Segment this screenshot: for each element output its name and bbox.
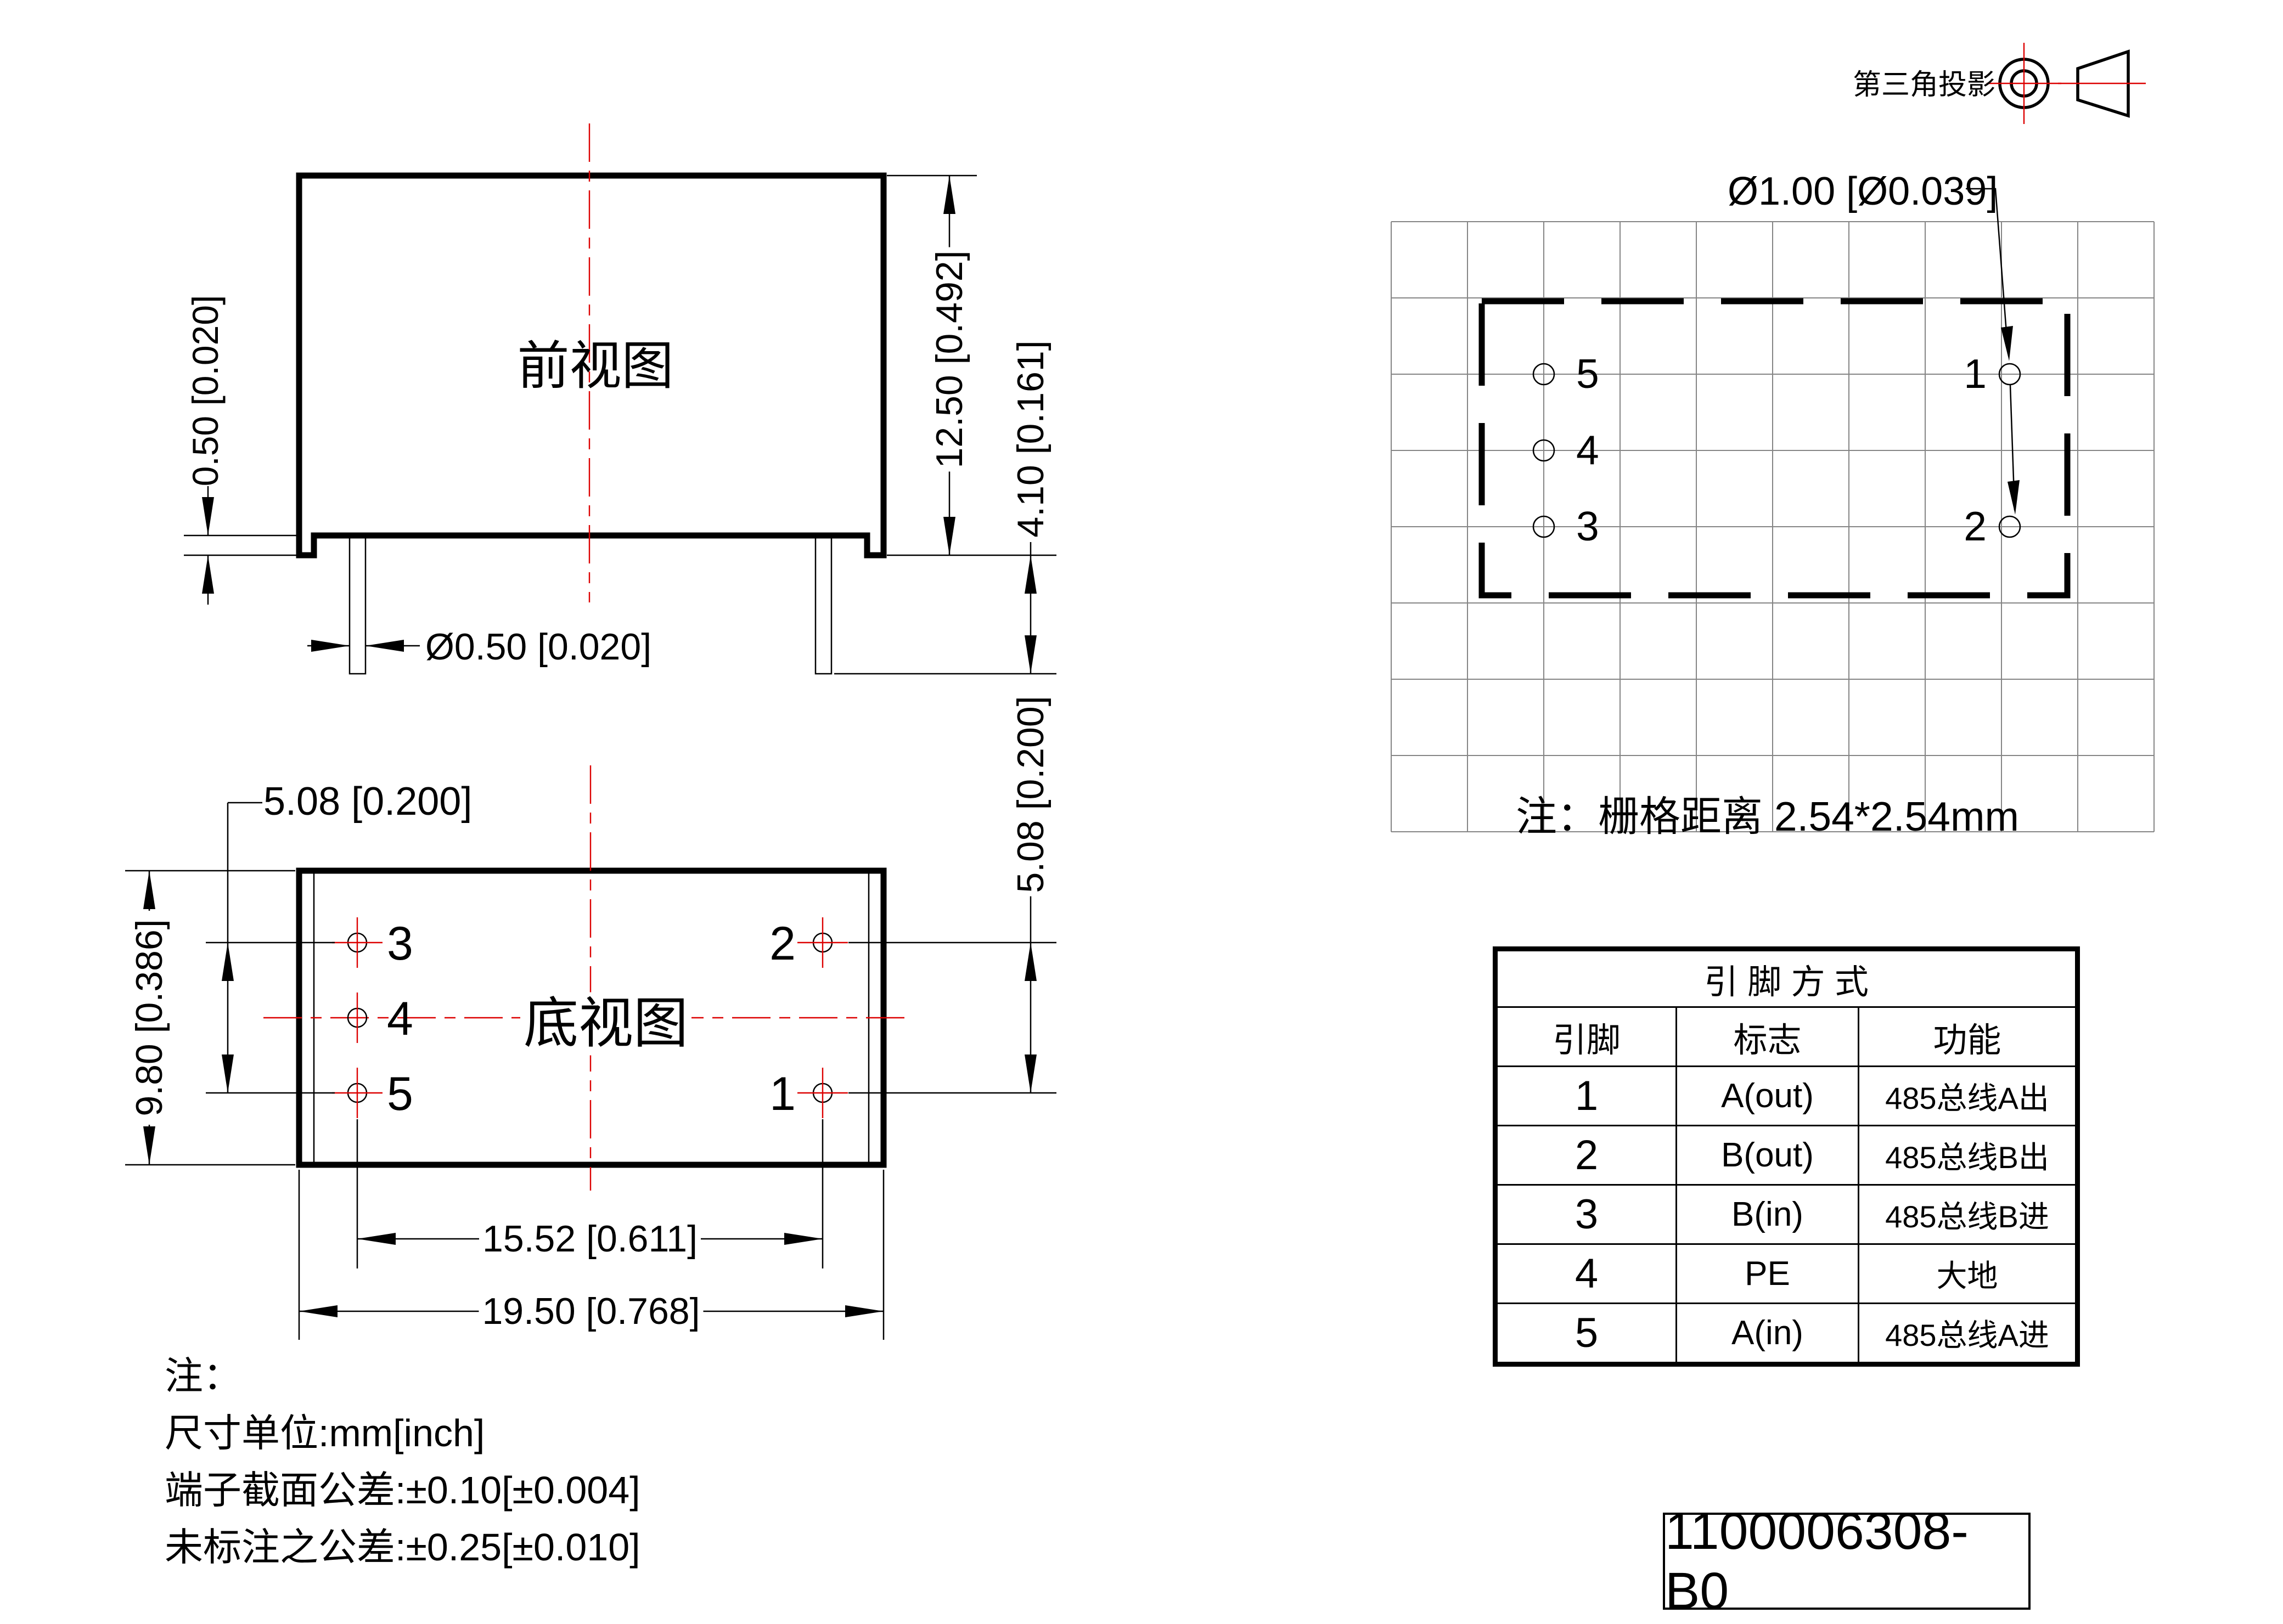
grid-pitch-note: 注：栅格距离 2.54*2.54mm bbox=[1516, 793, 2019, 840]
table-title: 引 脚 方 式 bbox=[1498, 951, 2075, 1006]
bottom-pin1-label: 1 bbox=[746, 1067, 796, 1121]
dim-row-pitch-left-label: 5.08 [0.200] bbox=[263, 779, 472, 825]
third-angle-projection-symbol bbox=[1987, 43, 2146, 124]
cell-pin: 1 bbox=[1498, 1067, 1675, 1125]
hole-diameter-label: Ø1.00 [Ø0.039] bbox=[1728, 169, 1998, 215]
arrowhead bbox=[357, 1233, 396, 1245]
cell-mark: PE bbox=[1675, 1245, 1858, 1302]
arrowhead bbox=[1025, 943, 1037, 981]
dim-depth-label: 9.80 [0.386] bbox=[128, 916, 171, 1119]
table-header-row: 引脚 标志 功能 bbox=[1498, 1006, 2075, 1065]
projection-label: 第三角投影 bbox=[1853, 69, 1995, 102]
pin-crosshair bbox=[332, 1068, 383, 1118]
arrowhead bbox=[222, 943, 234, 981]
arrowhead bbox=[143, 871, 155, 909]
pin-crosshair bbox=[797, 917, 848, 968]
dim-height-label: 12.50 [0.492] bbox=[928, 247, 971, 471]
cell-mark: B(in) bbox=[1675, 1186, 1858, 1243]
pin-crosshair bbox=[332, 917, 383, 968]
cell-mark: A(in) bbox=[1675, 1304, 1858, 1362]
table-row: 2 B(out) 485总线B出 bbox=[1498, 1125, 2075, 1184]
front-view-title: 前视图 bbox=[517, 336, 673, 396]
arrowhead bbox=[299, 1305, 338, 1317]
cell-function: 485总线A进 bbox=[1858, 1304, 2075, 1362]
part-number: 1100006308-B0 bbox=[1665, 1502, 2028, 1621]
table-row: 3 B(in) 485总线B进 bbox=[1498, 1184, 2075, 1243]
module-outline-dashed bbox=[1482, 301, 2067, 595]
arrowhead bbox=[943, 176, 955, 214]
arrowhead bbox=[202, 555, 214, 594]
arrowhead bbox=[1025, 635, 1037, 674]
cell-pin: 2 bbox=[1498, 1126, 1675, 1184]
bottom-pin2-label: 2 bbox=[746, 917, 796, 971]
arrowhead bbox=[1025, 555, 1037, 594]
note-general-tolerance: 未标注之公差:±0.25[±0.010] bbox=[165, 1525, 640, 1570]
pin-crosshair bbox=[797, 1068, 848, 1118]
dim-pin-diameter-label: Ø0.50 [0.020] bbox=[425, 625, 651, 668]
arrowhead bbox=[784, 1233, 823, 1245]
notes-title: 注： bbox=[165, 1354, 241, 1399]
arrowhead bbox=[365, 640, 404, 652]
front-view bbox=[184, 123, 1056, 674]
col-header-pin: 引脚 bbox=[1498, 1008, 1675, 1065]
cell-pin: 3 bbox=[1498, 1186, 1675, 1243]
fp-pin1-label: 1 bbox=[1937, 350, 1987, 397]
cell-function: 485总线A出 bbox=[1858, 1067, 2075, 1125]
dim-body-width-label: 19.50 [0.768] bbox=[479, 1290, 703, 1333]
cell-function: 大地 bbox=[1858, 1245, 2075, 1302]
cell-mark: B(out) bbox=[1675, 1126, 1858, 1184]
bottom-pin3-label: 3 bbox=[387, 917, 413, 971]
part-number-box: 1100006308-B0 bbox=[1663, 1513, 2031, 1610]
arrowhead bbox=[1025, 1055, 1037, 1093]
bottom-pin5-label: 5 bbox=[387, 1067, 413, 1121]
engineering-drawing-sheet: 第三角投影 前视图 0.50 [0.020] 12.50 [0.492] 4.1… bbox=[0, 0, 2283, 1624]
fp-pin3-label: 3 bbox=[1576, 503, 1599, 550]
pin-function-table: 引 脚 方 式 引脚 标志 功能 1 A(out) 485总线A出 2 B(ou… bbox=[1493, 946, 2080, 1367]
bottom-pin4-label: 4 bbox=[387, 992, 413, 1046]
col-header-mark: 标志 bbox=[1675, 1008, 1858, 1065]
pcb-grid bbox=[1391, 222, 2154, 832]
note-terminal-tolerance: 端子截面公差:±0.10[±0.004] bbox=[165, 1468, 640, 1513]
dim-standoff-label: 0.50 [0.020] bbox=[185, 295, 227, 487]
cell-mark: A(out) bbox=[1675, 1067, 1858, 1125]
cell-pin: 4 bbox=[1498, 1245, 1675, 1302]
dim-pin-span-label: 15.52 [0.611] bbox=[479, 1217, 701, 1260]
cell-pin: 5 bbox=[1498, 1304, 1675, 1362]
col-header-function: 功能 bbox=[1858, 1008, 2075, 1065]
cell-function: 485总线B出 bbox=[1858, 1126, 2075, 1184]
table-row: 1 A(out) 485总线A出 bbox=[1498, 1065, 2075, 1125]
fp-pin4-label: 4 bbox=[1576, 426, 1599, 473]
arrowhead bbox=[2001, 326, 2013, 361]
arrowhead bbox=[845, 1305, 884, 1317]
arrowhead bbox=[222, 1055, 234, 1093]
fp-pin2-label: 2 bbox=[1937, 503, 1987, 550]
bottom-view-title: 底视图 bbox=[520, 993, 691, 1056]
footprint-view bbox=[1391, 189, 2154, 832]
fp-pin5-label: 5 bbox=[1576, 350, 1599, 397]
projection-circle-centerlines bbox=[1987, 43, 2061, 124]
arrowhead bbox=[311, 640, 350, 652]
arrowhead bbox=[943, 517, 955, 555]
table-row: 5 A(in) 485总线A进 bbox=[1498, 1302, 2075, 1362]
dim-row-pitch-right-label: 5.08 [0.200] bbox=[1009, 692, 1052, 896]
table-row: 4 PE 大地 bbox=[1498, 1243, 2075, 1302]
arrowhead bbox=[202, 497, 214, 535]
arrowhead bbox=[2008, 480, 2020, 515]
note-units: 尺寸单位:mm[inch] bbox=[165, 1411, 485, 1456]
front-pin-right bbox=[816, 535, 831, 674]
arrowhead bbox=[143, 1126, 155, 1165]
dim-pin-length-label: 4.10 [0.161] bbox=[1009, 337, 1052, 540]
dim-line-row-pitch-left bbox=[228, 803, 262, 1093]
cell-function: 485总线B进 bbox=[1858, 1186, 2075, 1243]
front-pin-left bbox=[350, 535, 365, 674]
